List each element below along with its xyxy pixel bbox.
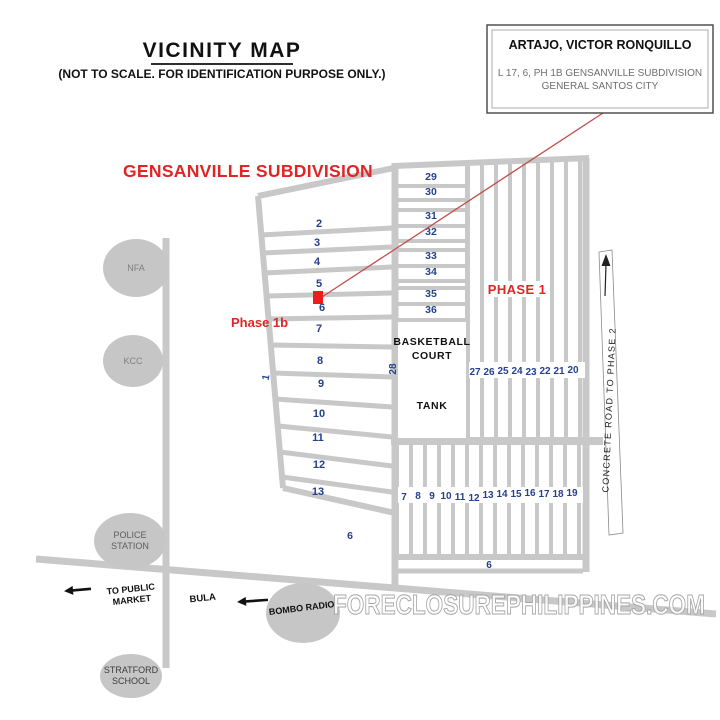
basketball-court-label2: COURT (412, 350, 452, 362)
lot-number: 21 (553, 366, 565, 377)
lot-number: 17 (538, 489, 550, 500)
owner-address-line2: GENERAL SANTOS CITY (542, 81, 659, 92)
landmarks: NFA KCC POLICE STATION STRATFORD SCHOOL (94, 239, 340, 698)
lot-divider (264, 267, 392, 273)
lot-divider (278, 426, 392, 437)
arrow-head (237, 597, 247, 607)
lot-divider (275, 399, 392, 407)
block-number: 6 (486, 560, 492, 571)
lot-number: 24 (511, 366, 523, 377)
phase1b-block (258, 168, 395, 513)
lot-number: 9 (429, 491, 435, 502)
left-arrow-icon (64, 584, 92, 595)
lot-number: 13 (482, 490, 494, 501)
arrow-shaft (244, 600, 268, 602)
lot-number: 34 (425, 266, 437, 278)
lot-number: 35 (425, 288, 437, 300)
bottom-comb-block (393, 445, 586, 571)
lot-number: 26 (483, 367, 495, 378)
police-station-label: POLICE (113, 530, 146, 540)
lot-number: 13 (312, 486, 324, 498)
lot-number: 19 (566, 488, 578, 499)
vicinity-map: BASKETBALL COURT TANK CONCRETE ROAD TO P… (0, 0, 720, 720)
left-arrow-icon (237, 595, 269, 606)
lot-number: 7 (401, 492, 407, 503)
lot-number: 7 (316, 323, 322, 335)
lot-number: 25 (497, 366, 509, 377)
lot-number: 8 (415, 491, 421, 502)
lot-number: 36 (425, 304, 437, 316)
tank-label: TANK (417, 400, 448, 412)
lot-divider (273, 373, 392, 377)
phase-1-label: PHASE 1 (488, 282, 546, 297)
subdivision-title: GENSANVILLE SUBDIVISION (123, 161, 373, 181)
top-edge-road (394, 158, 589, 166)
lot-number: 9 (318, 378, 324, 390)
bula-label: BULA (189, 592, 217, 606)
vicinity-map-canvas: BASKETBALL COURT TANK CONCRETE ROAD TO P… (0, 0, 720, 720)
lot-number: 29 (425, 171, 437, 183)
lot-number: 8 (317, 355, 323, 367)
stratford-school-label2: SCHOOL (112, 676, 150, 686)
kcc-label: KCC (123, 356, 143, 366)
phase-1b-label: Phase 1b (231, 315, 288, 330)
lot-number: 5 (316, 278, 322, 290)
lot-divider (263, 247, 392, 253)
lot-number: 4 (314, 256, 321, 268)
lot-divider (267, 293, 392, 296)
lot-number: 22 (539, 366, 551, 377)
lot-number: 11 (312, 432, 324, 444)
block-edge (258, 196, 283, 488)
arrow-shaft (71, 589, 91, 591)
watermark: FORECLOSUREPHILIPPINES.COM (333, 589, 705, 620)
lot-number: 2 (316, 218, 322, 230)
police-station-label2: STATION (111, 541, 149, 551)
page-subtitle: (NOT TO SCALE. FOR IDENTIFICATION PURPOS… (58, 67, 385, 81)
lot-divider (280, 452, 392, 466)
stratford-school-label: STRATFORD (104, 665, 159, 675)
to-public-market: TO PUBLIC MARKET (106, 581, 157, 607)
lot-number: 10 (313, 408, 325, 420)
lot-number: 27 (469, 367, 481, 378)
lot-divider (261, 228, 392, 235)
lot-number: 20 (567, 365, 579, 376)
lot-number: 30 (425, 186, 437, 198)
lot-number: 31 (425, 210, 437, 222)
subject-lot-marker (313, 291, 323, 304)
concrete-road-strip: CONCRETE ROAD TO PHASE 2 (599, 250, 623, 535)
lot-number: 14 (496, 489, 508, 500)
lot-number-rotated: 28 (388, 363, 399, 375)
basketball-court-label: BASKETBALL (393, 336, 470, 348)
owner-info-box: ARTAJO, VICTOR RONQUILLO L 17, 6, PH 1B … (487, 25, 713, 113)
lot-number: 10 (440, 491, 452, 502)
lot-number: 18 (552, 489, 564, 500)
block-number: 6 (347, 530, 353, 542)
lot-number: 33 (425, 250, 437, 262)
arrow-head (64, 586, 74, 596)
lot-number: 23 (525, 367, 537, 378)
lot-number: 16 (524, 488, 536, 499)
lot-number: 3 (314, 237, 320, 249)
nfa-label: NFA (127, 263, 145, 273)
lot-number: 12 (313, 459, 325, 471)
page-title: VICINITY MAP (143, 39, 302, 62)
lot-number: 11 (455, 492, 466, 503)
owner-name: ARTAJO, VICTOR RONQUILLO (509, 38, 692, 52)
owner-address-line1: L 17, 6, PH 1B GENSANVILLE SUBDIVISION (498, 68, 702, 79)
lot-number: 15 (510, 489, 522, 500)
phase1-comb (482, 160, 580, 439)
callout-line (322, 113, 603, 297)
lot-number: 12 (468, 493, 480, 504)
lot-divider (271, 345, 392, 347)
